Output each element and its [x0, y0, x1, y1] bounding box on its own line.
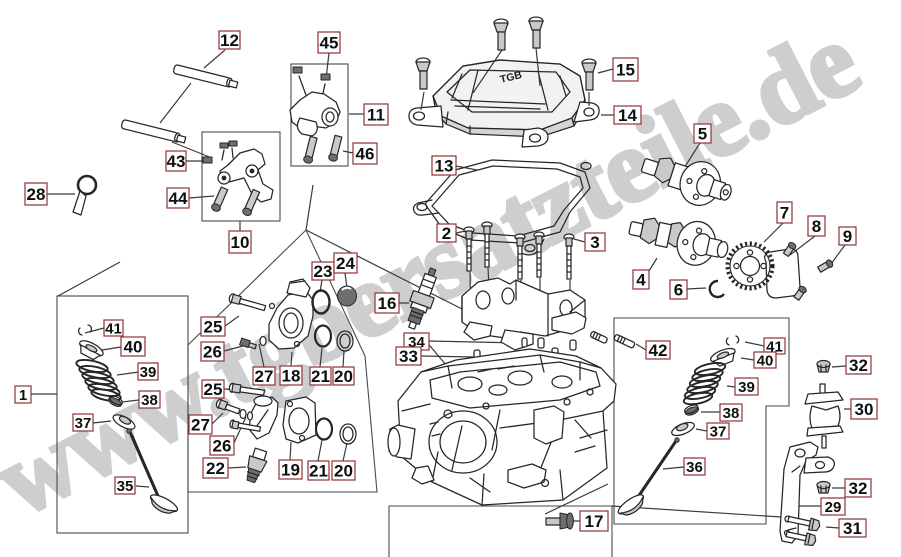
svg-text:38: 38 — [141, 392, 158, 409]
svg-text:22: 22 — [206, 459, 225, 478]
svg-text:39: 39 — [140, 364, 157, 381]
svg-text:10: 10 — [231, 233, 250, 252]
svg-text:15: 15 — [616, 61, 635, 80]
svg-text:38: 38 — [723, 405, 740, 422]
svg-text:19: 19 — [281, 461, 300, 480]
svg-text:26: 26 — [203, 343, 222, 362]
svg-text:20: 20 — [334, 367, 353, 386]
svg-text:20: 20 — [334, 462, 353, 481]
svg-text:3: 3 — [590, 233, 599, 252]
svg-text:45: 45 — [320, 34, 339, 53]
svg-text:8: 8 — [812, 217, 821, 236]
svg-text:5: 5 — [698, 125, 707, 144]
svg-text:27: 27 — [191, 416, 210, 435]
svg-text:1: 1 — [19, 387, 27, 404]
svg-text:4: 4 — [636, 271, 646, 290]
svg-text:9: 9 — [843, 227, 852, 246]
svg-text:27: 27 — [255, 367, 274, 386]
svg-text:25: 25 — [204, 318, 223, 337]
svg-text:21: 21 — [309, 462, 328, 481]
svg-text:2: 2 — [442, 224, 451, 243]
svg-text:33: 33 — [399, 347, 418, 366]
svg-text:32: 32 — [849, 479, 868, 498]
svg-text:31: 31 — [843, 519, 862, 538]
svg-text:16: 16 — [378, 294, 397, 313]
svg-text:7: 7 — [780, 204, 789, 223]
svg-text:40: 40 — [757, 352, 774, 369]
svg-text:11: 11 — [367, 106, 385, 125]
svg-text:36: 36 — [686, 459, 703, 476]
svg-text:42: 42 — [649, 341, 668, 360]
svg-text:24: 24 — [336, 254, 355, 273]
svg-text:41: 41 — [105, 320, 122, 337]
svg-text:28: 28 — [27, 185, 46, 204]
svg-text:39: 39 — [738, 379, 755, 396]
svg-text:40: 40 — [124, 338, 143, 357]
svg-text:35: 35 — [117, 478, 134, 495]
svg-text:32: 32 — [849, 356, 868, 375]
svg-text:18: 18 — [282, 367, 301, 386]
svg-text:17: 17 — [585, 512, 604, 531]
svg-text:37: 37 — [710, 423, 727, 440]
svg-text:6: 6 — [674, 281, 683, 300]
svg-text:26: 26 — [213, 437, 232, 456]
svg-text:13: 13 — [435, 157, 454, 176]
svg-text:46: 46 — [356, 145, 375, 164]
svg-text:12: 12 — [220, 31, 239, 50]
svg-text:23: 23 — [314, 262, 333, 281]
svg-text:25: 25 — [204, 380, 223, 399]
svg-text:37: 37 — [75, 415, 92, 432]
svg-text:30: 30 — [855, 400, 874, 419]
svg-text:21: 21 — [311, 367, 330, 386]
svg-text:44: 44 — [169, 189, 188, 208]
svg-text:29: 29 — [825, 499, 842, 516]
svg-text:14: 14 — [618, 106, 637, 125]
svg-text:43: 43 — [167, 152, 186, 171]
